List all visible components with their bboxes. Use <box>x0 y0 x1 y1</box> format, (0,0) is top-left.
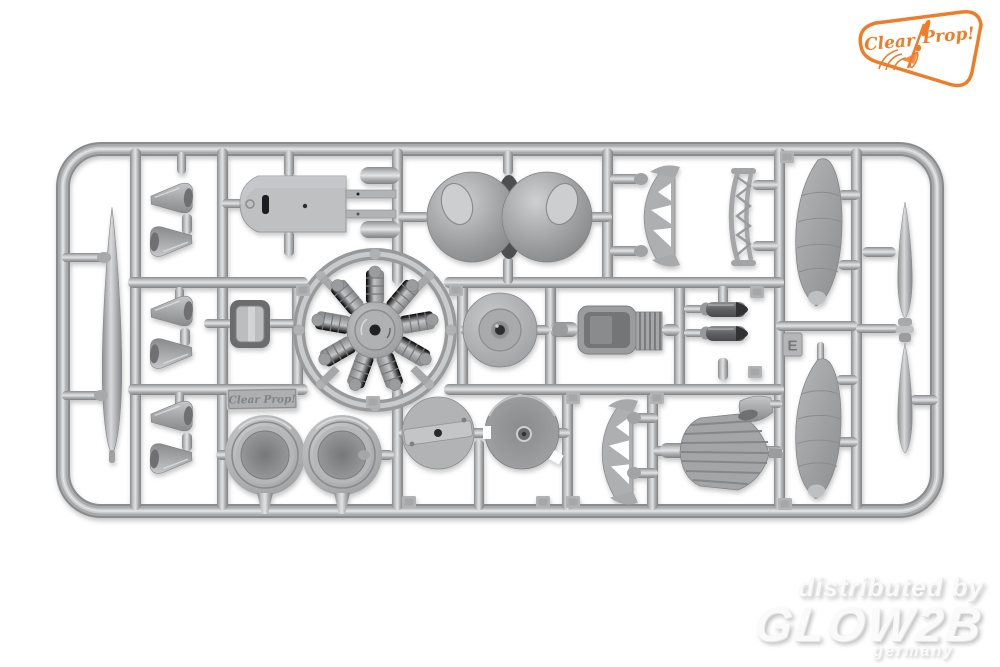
molded-plate-text: Clear Prop! <box>228 393 296 406</box>
cowl-front-disc-part <box>463 293 537 367</box>
cockpit-deck-part <box>240 167 400 238</box>
cowling-dome-parts <box>427 172 592 262</box>
cowl-ring-wheel-right <box>302 415 382 514</box>
firewall-disc-part <box>402 397 474 469</box>
ladder-strut-part <box>731 168 756 266</box>
distributor-watermark: distributed by GLOW2B germany <box>755 572 984 661</box>
girder-strut-part-top <box>634 165 680 266</box>
brand-badge: Clear Prop! <box>844 8 994 108</box>
sprue-letter-tag: E <box>783 333 802 356</box>
float-panel-part-top <box>796 159 842 306</box>
sprue-letter-text: E <box>787 338 797 355</box>
louvered-cowl-part <box>660 414 782 490</box>
cowl-ring-wheel-left <box>225 415 305 514</box>
girder-strut-part-bottom <box>602 399 641 504</box>
propeller-blade-right-bottom <box>898 343 912 453</box>
spinner-hub-part <box>896 318 914 342</box>
propeller-blade-left <box>94 207 122 463</box>
watermark-brand: GLOW2B <box>753 603 986 649</box>
propeller-blade-right-top <box>898 202 912 318</box>
radiator-frame-part <box>230 300 270 348</box>
radial-engine-part <box>294 249 457 412</box>
molded-brand-plate: Clear Prop! <box>227 388 297 410</box>
product-photo: Clear Prop! <box>0 0 1000 667</box>
float-panel-part-bottom <box>796 359 841 499</box>
radiator-box-part <box>550 306 680 354</box>
bullet-exhaust-parts <box>700 302 748 341</box>
cowl-bowl-part <box>483 395 564 469</box>
